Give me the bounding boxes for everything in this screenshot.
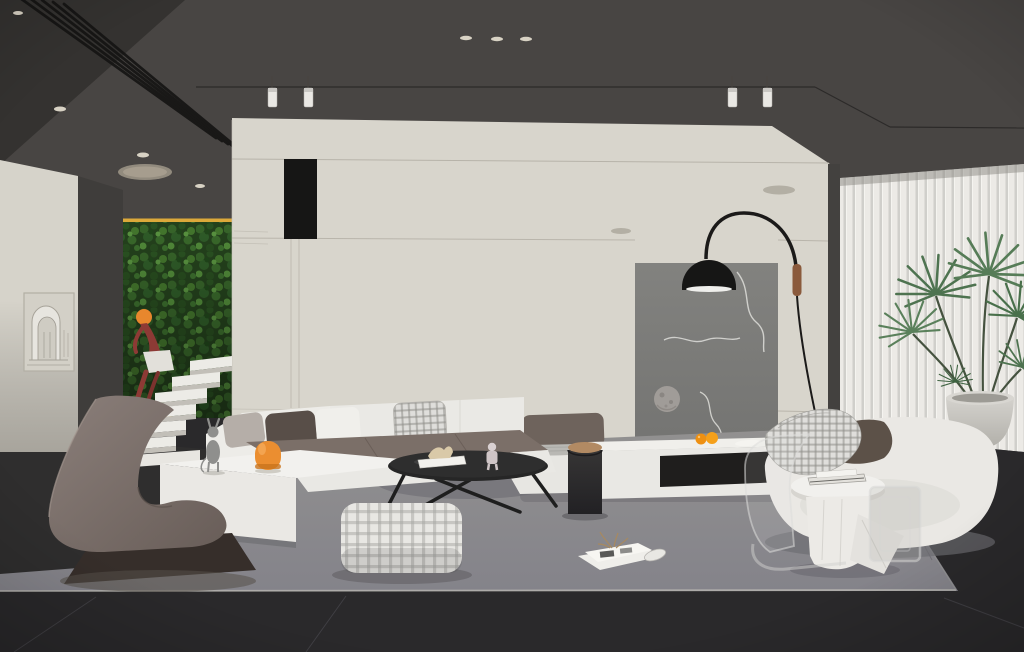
- living-room-render: [0, 0, 1024, 652]
- vignette-overlay: [0, 0, 1024, 652]
- render-canvas: [0, 0, 1024, 652]
